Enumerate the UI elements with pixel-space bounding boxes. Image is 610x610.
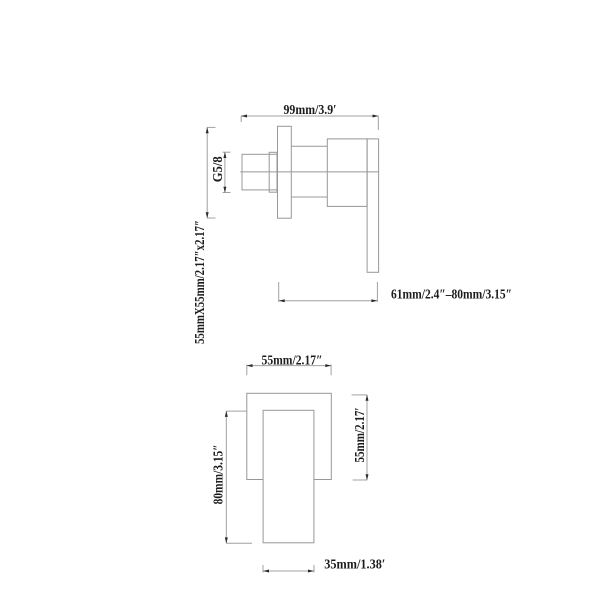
svg-text:55mmX55mm/2.17″x2.17″: 55mmX55mm/2.17″x2.17″ [192, 220, 207, 344]
svg-text:55mm/2.17′: 55mm/2.17′ [352, 408, 367, 463]
svg-text:G5/8: G5/8 [210, 156, 225, 182]
svg-text:35mm/1.38′: 35mm/1.38′ [324, 557, 385, 572]
svg-text:55mm/2.17″: 55mm/2.17″ [262, 352, 323, 367]
svg-text:99mm/3.9′: 99mm/3.9′ [284, 102, 337, 117]
svg-text:80mm/3.15″: 80mm/3.15″ [211, 444, 226, 504]
svg-text:61mm/2.4″–80mm/3.15″: 61mm/2.4″–80mm/3.15″ [391, 287, 512, 302]
